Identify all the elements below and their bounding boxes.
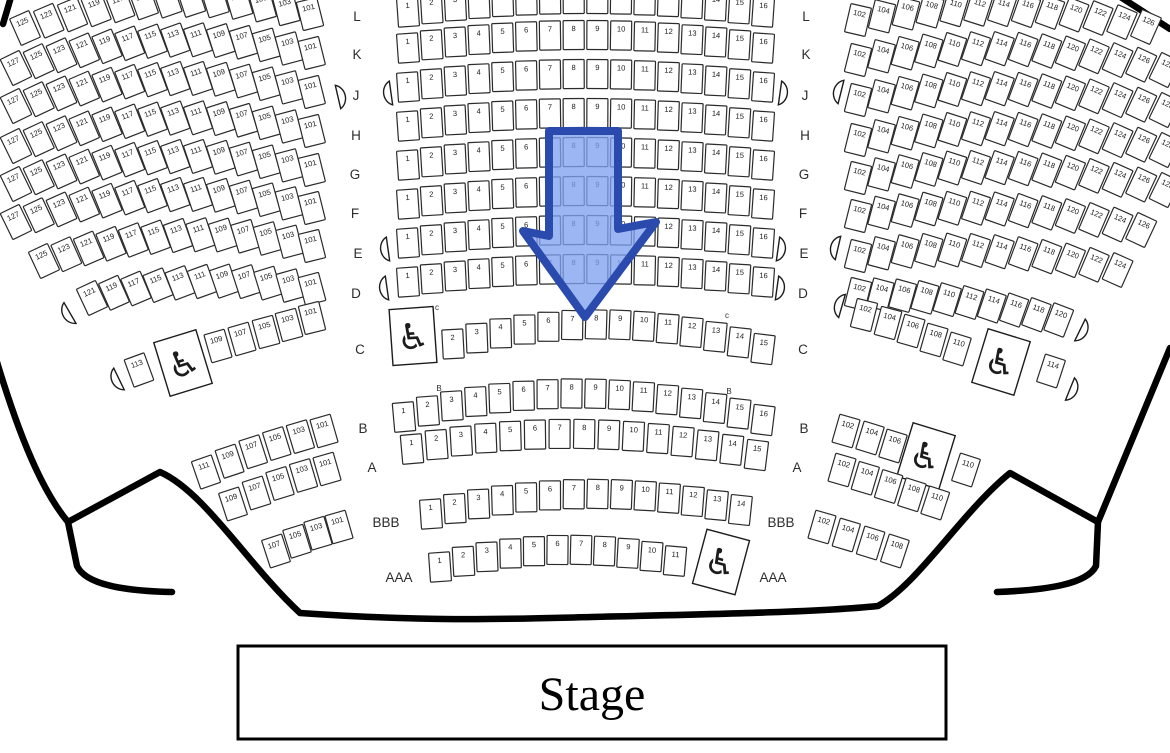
row-label: B — [358, 421, 367, 436]
seat-center-F-15[interactable]: 15 — [728, 186, 751, 216]
seat-center-B-8[interactable]: 8 — [561, 379, 582, 408]
seat-number: 2 — [452, 497, 457, 506]
seat-center-AAA-4[interactable]: 4 — [500, 539, 522, 568]
seat-number: 14 — [712, 31, 721, 40]
seat-center-L-11[interactable]: 11 — [634, 0, 656, 15]
seat-number: 14 — [712, 0, 721, 4]
seat-number: 12 — [664, 144, 673, 153]
seat-center-F-11[interactable]: 11 — [634, 178, 656, 207]
wheelchair-space-center-C[interactable]: ♿ — [389, 307, 437, 366]
seat-center-B-14[interactable]: 14 — [703, 393, 727, 424]
seat-center-AAA-7[interactable]: 7 — [570, 535, 592, 565]
seat-center-BBB-8[interactable]: 8 — [587, 479, 609, 508]
seat-center-K-16[interactable]: 16 — [752, 33, 775, 63]
seat-number: 13 — [688, 185, 697, 194]
seat-center-F-4[interactable]: 4 — [468, 181, 490, 211]
seat-center-L-4[interactable]: 4 — [468, 0, 490, 19]
seat-number: 1 — [405, 37, 410, 46]
seat-center-E-13[interactable]: 13 — [681, 220, 703, 250]
seat-center-E-11[interactable]: 11 — [634, 217, 656, 246]
seat-number: 9 — [595, 102, 599, 111]
seat-number: 3 — [458, 430, 463, 439]
seat-center-H-14[interactable]: 14 — [704, 105, 726, 135]
seat-center-K-13[interactable]: 13 — [681, 25, 703, 55]
seat-center-L-5[interactable]: 5 — [492, 0, 514, 17]
seat-center-B-5[interactable]: 5 — [489, 383, 511, 413]
seat-center-J-12[interactable]: 12 — [657, 62, 679, 92]
seat-center-D-12[interactable]: 12 — [657, 257, 679, 287]
seat-center-L-8[interactable]: 8 — [563, 0, 584, 14]
seat-center-H-12[interactable]: 12 — [657, 101, 679, 131]
seat-center-E-14[interactable]: 14 — [704, 222, 726, 252]
seat-center-L-9[interactable]: 9 — [587, 0, 608, 14]
seat-center-H-13[interactable]: 13 — [681, 103, 703, 133]
seat-center-F-14[interactable]: 14 — [704, 183, 726, 213]
seat-number: 5 — [500, 105, 505, 114]
seat-center-J-6[interactable]: 6 — [516, 61, 538, 90]
seat-center-G-9[interactable]: 9 — [587, 138, 608, 167]
seat-center-L-2[interactable]: 2 — [420, 0, 443, 24]
seat-center-J-5[interactable]: 5 — [492, 62, 514, 92]
seat-center-H-7[interactable]: 7 — [539, 99, 560, 128]
seat-number: 3 — [453, 265, 458, 274]
seat-center-G-12[interactable]: 12 — [657, 140, 679, 170]
seat-number: 8 — [582, 423, 586, 432]
seat-number: 3 — [453, 0, 458, 4]
seat-center-AAA-11[interactable]: 11 — [663, 546, 686, 577]
seat-center-C-11[interactable]: 11 — [656, 314, 679, 344]
seat-center-L-12[interactable]: 12 — [657, 0, 679, 17]
seat-center-A-12[interactable]: 12 — [671, 426, 694, 457]
seat-center-G-3[interactable]: 3 — [444, 144, 466, 174]
seat-number: 5 — [500, 66, 505, 75]
seat-box — [681, 0, 703, 19]
seat-center-H-6[interactable]: 6 — [516, 100, 538, 129]
seat-number: 14 — [712, 265, 721, 274]
seat-number: 3 — [453, 70, 458, 79]
seat-center-A-8[interactable]: 8 — [573, 419, 595, 448]
seat-box — [492, 0, 514, 17]
seat-center-D-5[interactable]: 5 — [492, 257, 514, 287]
seat-center-D-6[interactable]: 6 — [516, 256, 538, 285]
seat-center-C-10[interactable]: 10 — [633, 311, 656, 341]
seat-center-BBB-1[interactable]: 1 — [420, 499, 443, 529]
seat-number: 6 — [533, 424, 537, 433]
seat-center-C-15[interactable]: 15 — [751, 333, 775, 364]
row-label: AAA — [759, 570, 786, 585]
seat-center-F-13[interactable]: 13 — [681, 181, 703, 211]
seat-box — [539, 0, 560, 14]
seat-center-A-11[interactable]: 11 — [647, 423, 670, 453]
seat-number: 9 — [595, 24, 599, 33]
seat-number: 9 — [626, 542, 631, 551]
seat-center-J-1[interactable]: 1 — [397, 72, 420, 102]
seat-number: 13 — [688, 68, 697, 77]
row-label: B — [799, 421, 808, 436]
seat-number: 16 — [759, 115, 768, 125]
seat-center-AAA-1[interactable]: 1 — [429, 552, 452, 582]
row-label: J — [353, 88, 360, 103]
seat-center-E-12[interactable]: 12 — [657, 218, 679, 248]
seat-center-D-9[interactable]: 9 — [587, 255, 608, 284]
seat-center-C-14[interactable]: 14 — [727, 327, 751, 358]
seat-center-L-7[interactable]: 7 — [539, 0, 560, 14]
seat-center-H-8[interactable]: 8 — [563, 99, 584, 128]
seat-center-BBB-9[interactable]: 9 — [610, 480, 632, 510]
seat-number: 1 — [405, 193, 410, 202]
seat-number: 1 — [409, 438, 414, 447]
seat-center-L-16[interactable]: 16 — [752, 0, 775, 27]
seat-center-AAA-2[interactable]: 2 — [452, 546, 475, 576]
seat-center-J-13[interactable]: 13 — [681, 64, 703, 94]
seat-center-AAA-3[interactable]: 3 — [476, 542, 498, 572]
seat-center-H-4[interactable]: 4 — [468, 103, 490, 133]
row-label: D — [351, 286, 361, 301]
seat-center-B-9[interactable]: 9 — [585, 379, 607, 409]
seat-number: 9 — [595, 141, 599, 150]
seat-center-BBB-7[interactable]: 7 — [563, 480, 584, 509]
seat-center-H-2[interactable]: 2 — [420, 108, 443, 138]
seat-number: 3 — [453, 148, 458, 157]
seat-center-K-6[interactable]: 6 — [516, 22, 538, 51]
seat-center-A-13[interactable]: 13 — [695, 430, 719, 461]
seat-center-B-16[interactable]: 16 — [751, 404, 775, 435]
seat-center-G-11[interactable]: 11 — [634, 139, 656, 168]
seat-center-L-10[interactable]: 10 — [610, 0, 631, 14]
seat-center-E-3[interactable]: 3 — [444, 222, 466, 252]
row-label: J — [802, 88, 809, 103]
seat-number: 14 — [712, 148, 721, 157]
seat-center-K-14[interactable]: 14 — [704, 27, 726, 57]
seat-center-L-13[interactable]: 13 — [681, 0, 703, 19]
seat-center-A-14[interactable]: 14 — [720, 434, 744, 465]
seat-number: 7 — [548, 24, 552, 33]
seat-number: 4 — [483, 427, 488, 436]
seat-number: 15 — [735, 112, 744, 121]
seat-center-G-13[interactable]: 13 — [681, 142, 703, 172]
seat-number: 8 — [572, 180, 576, 189]
seat-number: 15 — [735, 190, 744, 199]
seat-center-B-15[interactable]: 15 — [727, 398, 751, 429]
seat-number: 2 — [429, 190, 434, 199]
seat-number: 6 — [524, 181, 528, 190]
seat-center-A-9[interactable]: 9 — [598, 420, 620, 450]
seat-center-D-8[interactable]: 8 — [563, 255, 584, 284]
seat-center-D-16[interactable]: 16 — [752, 267, 775, 297]
seat-center-K-5[interactable]: 5 — [492, 23, 514, 53]
seat-number: 15 — [735, 0, 744, 7]
seat-center-BBB-11[interactable]: 11 — [658, 483, 681, 513]
row-label: K — [352, 47, 361, 62]
seat-center-E-4[interactable]: 4 — [468, 220, 490, 250]
seat-center-E-15[interactable]: 15 — [728, 225, 751, 255]
aisle-marker: c — [435, 303, 439, 312]
seat-number: 7 — [548, 63, 552, 72]
seat-number: 4 — [473, 391, 478, 400]
seat-center-K-2[interactable]: 2 — [420, 30, 443, 60]
seat-center-A-7[interactable]: 7 — [549, 419, 570, 448]
seat-number: 9 — [595, 63, 599, 72]
seat-center-H-15[interactable]: 15 — [728, 108, 751, 138]
seat-center-J-9[interactable]: 9 — [587, 60, 608, 89]
seat-number: 6 — [555, 539, 559, 548]
seat-center-E-1[interactable]: 1 — [397, 228, 420, 258]
seat-center-J-14[interactable]: 14 — [704, 66, 726, 96]
seat-center-B-4[interactable]: 4 — [465, 387, 487, 417]
seat-center-F-6[interactable]: 6 — [516, 178, 538, 207]
seat-center-A-5[interactable]: 5 — [500, 421, 522, 451]
row-label: L — [353, 9, 361, 24]
seat-number: 4 — [498, 322, 502, 331]
seat-center-BBB-4[interactable]: 4 — [491, 485, 513, 515]
seat-center-G-10[interactable]: 10 — [610, 138, 631, 167]
seat-center-AAA-10[interactable]: 10 — [640, 541, 663, 571]
seat-center-H-5[interactable]: 5 — [492, 101, 514, 131]
seat-number: 10 — [617, 141, 626, 150]
seat-center-C-2[interactable]: 2 — [442, 329, 464, 359]
seat-center-J-3[interactable]: 3 — [444, 66, 466, 96]
seat-center-D-10[interactable]: 10 — [610, 255, 631, 284]
seat-number: 11 — [671, 550, 680, 560]
seat-center-K-15[interactable]: 15 — [728, 30, 751, 60]
seat-center-D-3[interactable]: 3 — [444, 261, 466, 291]
seat-number: 7 — [572, 483, 576, 492]
seat-number: 3 — [449, 395, 454, 404]
seat-center-D-14[interactable]: 14 — [704, 261, 726, 291]
seat-number: 10 — [617, 102, 626, 111]
seat-number: 14 — [712, 187, 721, 196]
seat-center-L-1[interactable]: 1 — [397, 0, 420, 27]
seat-number: 9 — [593, 383, 597, 392]
seat-center-A-15[interactable]: 15 — [744, 439, 768, 470]
seat-center-D-13[interactable]: 13 — [681, 259, 703, 289]
seat-center-G-7[interactable]: 7 — [539, 138, 560, 167]
seat-center-E-16[interactable]: 16 — [752, 228, 775, 258]
seat-center-B-7[interactable]: 7 — [537, 380, 558, 409]
seat-center-B-3[interactable]: 3 — [441, 391, 464, 421]
seat-center-F-2[interactable]: 2 — [420, 186, 443, 216]
seat-center-D-11[interactable]: 11 — [634, 256, 656, 285]
seat-center-BBB-3[interactable]: 3 — [467, 489, 489, 519]
row-label: G — [350, 167, 361, 182]
row-label: K — [801, 47, 810, 62]
seat-center-AAA-5[interactable]: 5 — [523, 537, 544, 566]
seat-center-K-9[interactable]: 9 — [587, 21, 608, 50]
seat-center-A-10[interactable]: 10 — [622, 421, 644, 451]
seat-number: 11 — [641, 25, 649, 34]
seat-center-F-10[interactable]: 10 — [610, 177, 631, 206]
seat-center-G-14[interactable]: 14 — [704, 144, 726, 174]
seat-center-E-6[interactable]: 6 — [516, 217, 538, 246]
seat-center-K-11[interactable]: 11 — [634, 22, 656, 51]
seat-center-E-7[interactable]: 7 — [539, 216, 560, 245]
seat-number: 16 — [759, 76, 768, 86]
seat-center-C-6[interactable]: 6 — [538, 312, 559, 341]
seat-number: 2 — [429, 0, 434, 7]
seat-number: 15 — [735, 73, 744, 82]
seat-center-H-16[interactable]: 16 — [752, 111, 775, 141]
seat-center-E-10[interactable]: 10 — [610, 216, 631, 245]
seat-number: 2 — [429, 229, 434, 238]
seat-number: 6 — [524, 220, 528, 229]
seat-center-K-7[interactable]: 7 — [539, 21, 560, 50]
seat-center-H-3[interactable]: 3 — [444, 105, 466, 135]
seat-number: 11 — [641, 103, 649, 112]
seat-center-A-1[interactable]: 1 — [400, 434, 423, 465]
seat-center-K-12[interactable]: 12 — [657, 23, 679, 53]
seat-center-L-14[interactable]: 14 — [704, 0, 726, 21]
seat-center-BBB-5[interactable]: 5 — [515, 483, 536, 512]
seat-number: 3 — [484, 546, 489, 555]
seat-center-A-3[interactable]: 3 — [450, 426, 473, 456]
seat-center-H-10[interactable]: 10 — [610, 99, 631, 128]
seat-center-F-1[interactable]: 1 — [397, 189, 420, 219]
seat-center-C-9[interactable]: 9 — [609, 310, 631, 340]
seat-center-F-16[interactable]: 16 — [752, 189, 775, 219]
seat-center-F-12[interactable]: 12 — [657, 179, 679, 209]
seat-center-AAA-6[interactable]: 6 — [547, 535, 568, 564]
seat-center-B-2[interactable]: 2 — [416, 396, 439, 426]
seat-center-C-13[interactable]: 13 — [704, 321, 728, 352]
seat-center-J-11[interactable]: 11 — [634, 61, 656, 90]
seat-center-C-3[interactable]: 3 — [466, 323, 488, 353]
seat-number: 5 — [497, 387, 502, 396]
seat-center-G-4[interactable]: 4 — [468, 142, 490, 172]
seat-center-H-1[interactable]: 1 — [397, 111, 420, 141]
seat-number: 12 — [664, 105, 673, 114]
seat-center-BBB-13[interactable]: 13 — [705, 490, 729, 521]
seat-center-F-3[interactable]: 3 — [444, 183, 466, 213]
row-label: E — [353, 246, 362, 261]
seat-center-L-6[interactable]: 6 — [516, 0, 538, 15]
seat-number: 9 — [595, 180, 599, 189]
seat-center-K-1[interactable]: 1 — [397, 33, 420, 63]
row-label: A — [367, 460, 376, 475]
seat-number: 10 — [640, 315, 649, 324]
seat-center-K-10[interactable]: 10 — [610, 21, 631, 50]
seat-number: 3 — [453, 31, 458, 40]
seat-center-E-8[interactable]: 8 — [563, 216, 584, 245]
seat-center-K-8[interactable]: 8 — [563, 21, 584, 50]
seat-number: 10 — [641, 485, 650, 494]
seat-center-L-15[interactable]: 15 — [728, 0, 751, 24]
seat-number: 15 — [735, 34, 744, 43]
seat-center-E-9[interactable]: 9 — [587, 216, 608, 245]
seat-center-J-2[interactable]: 2 — [420, 69, 443, 99]
row-label: G — [799, 167, 810, 182]
seat-box — [587, 0, 608, 14]
seat-center-BBB-10[interactable]: 10 — [634, 481, 656, 511]
seat-number: 8 — [572, 141, 576, 150]
seat-center-D-7[interactable]: 7 — [539, 255, 560, 284]
seat-number: 1 — [405, 271, 410, 280]
seat-center-D-1[interactable]: 1 — [397, 267, 420, 297]
seat-center-C-12[interactable]: 12 — [680, 317, 703, 348]
seat-center-D-15[interactable]: 15 — [728, 264, 751, 294]
seat-number: 13 — [713, 494, 722, 504]
seat-number: 1 — [405, 232, 410, 241]
seat-center-J-16[interactable]: 16 — [752, 72, 775, 102]
seat-center-G-15[interactable]: 15 — [728, 147, 751, 177]
seat-center-C-4[interactable]: 4 — [490, 319, 512, 349]
seat-center-BBB-2[interactable]: 2 — [443, 494, 466, 524]
seat-center-G-5[interactable]: 5 — [492, 140, 514, 170]
seat-center-E-2[interactable]: 2 — [420, 225, 443, 255]
seat-number: 4 — [476, 107, 481, 116]
seat-center-K-3[interactable]: 3 — [444, 27, 466, 57]
seat-center-J-8[interactable]: 8 — [563, 60, 584, 89]
seat-center-B-11[interactable]: 11 — [632, 382, 654, 412]
seat-center-B-1[interactable]: 1 — [392, 402, 415, 433]
seat-number: 6 — [548, 484, 552, 493]
seat-center-AAA-8[interactable]: 8 — [593, 536, 615, 566]
row-label: BBB — [372, 515, 399, 530]
seat-center-J-10[interactable]: 10 — [610, 60, 631, 89]
seat-center-A-4[interactable]: 4 — [475, 423, 497, 453]
seat-center-BBB-6[interactable]: 6 — [539, 481, 560, 510]
seat-number: 12 — [687, 321, 696, 331]
seat-number: 6 — [524, 64, 528, 73]
row-label: BBB — [767, 515, 794, 530]
seat-center-A-2[interactable]: 2 — [425, 429, 448, 459]
seat-center-C-7[interactable]: 7 — [562, 310, 583, 339]
seat-number: 10 — [617, 63, 626, 72]
seat-center-BBB-14[interactable]: 14 — [728, 494, 752, 525]
seat-center-E-5[interactable]: 5 — [492, 218, 514, 248]
seat-center-D-4[interactable]: 4 — [468, 259, 490, 289]
seat-number: 1 — [428, 503, 433, 512]
seat-number: 13 — [703, 434, 712, 444]
seat-center-L-3[interactable]: 3 — [444, 0, 466, 21]
seat-center-G-6[interactable]: 6 — [516, 139, 538, 168]
seat-center-G-1[interactable]: 1 — [397, 150, 420, 180]
seat-center-G-8[interactable]: 8 — [563, 138, 584, 167]
seat-center-F-9[interactable]: 9 — [587, 177, 608, 206]
seat-center-J-4[interactable]: 4 — [468, 64, 490, 94]
seat-center-K-4[interactable]: 4 — [468, 25, 490, 55]
seat-number: 2 — [425, 400, 430, 409]
seat-center-G-2[interactable]: 2 — [420, 147, 443, 177]
seat-center-J-15[interactable]: 15 — [728, 69, 751, 99]
seat-center-B-6[interactable]: 6 — [513, 381, 535, 410]
seat-center-J-7[interactable]: 7 — [539, 60, 560, 89]
seat-center-B-12[interactable]: 12 — [656, 384, 679, 414]
seat-number: 3 — [453, 187, 458, 196]
seat-number: 8 — [572, 102, 576, 111]
seat-center-C-8[interactable]: 8 — [585, 310, 607, 340]
seat-center-H-11[interactable]: 11 — [634, 100, 656, 129]
seat-center-D-2[interactable]: 2 — [420, 264, 443, 294]
seat-number: 6 — [521, 385, 525, 394]
seat-center-A-6[interactable]: 6 — [524, 420, 545, 449]
seat-center-C-5[interactable]: 5 — [514, 315, 535, 344]
seat-number: 15 — [735, 151, 744, 160]
seat-number: 2 — [429, 268, 434, 277]
seat-number: 11 — [641, 142, 649, 151]
seat-center-F-5[interactable]: 5 — [492, 179, 514, 209]
seat-number: 14 — [735, 331, 744, 341]
seat-number: 4 — [476, 68, 481, 77]
seat-center-G-16[interactable]: 16 — [752, 150, 775, 180]
seat-center-F-8[interactable]: 8 — [563, 177, 584, 206]
seat-center-F-7[interactable]: 7 — [539, 177, 560, 206]
seat-number: 8 — [572, 24, 576, 33]
seat-center-H-9[interactable]: 9 — [587, 99, 608, 128]
seat-center-B-10[interactable]: 10 — [608, 380, 630, 410]
seat-center-AAA-9[interactable]: 9 — [617, 538, 640, 568]
seat-center-B-13[interactable]: 13 — [680, 388, 703, 419]
seat-center-BBB-12[interactable]: 12 — [681, 486, 704, 517]
